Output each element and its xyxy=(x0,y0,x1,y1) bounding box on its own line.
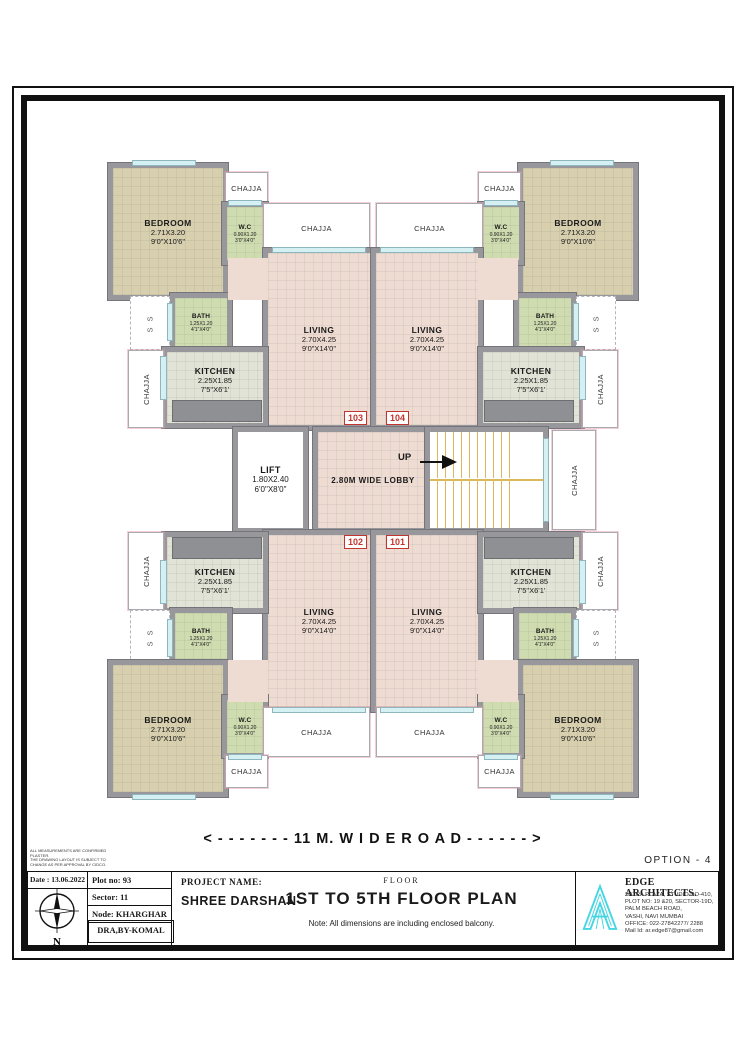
window xyxy=(573,619,579,657)
north-compass-icon: N xyxy=(35,889,79,947)
bedroom-101: BEDROOM 2.71X3.20 9'0"X10'6" xyxy=(518,660,638,797)
edge-architects-logo xyxy=(581,884,619,932)
flat-number-104: 104 xyxy=(386,411,409,425)
chajja-103-kitchen: CHAJJA xyxy=(128,350,164,428)
date-cell: Date : 13.06.2022 xyxy=(28,872,87,889)
stair-flight-lower xyxy=(430,481,510,528)
window xyxy=(272,247,366,253)
plot-info: Plot no: 93 Sector: 11 Node: KHARGHAR xyxy=(88,872,171,923)
window xyxy=(484,754,518,760)
window xyxy=(550,794,614,800)
service-shaft-102: S S xyxy=(130,610,170,664)
wc-102: W.C 0.90X1.20 3'0"X4'0" xyxy=(222,695,268,758)
window xyxy=(272,707,366,713)
window xyxy=(380,707,474,713)
option-label: OPTION - 4 xyxy=(600,855,712,866)
compass-n-label: N xyxy=(53,936,61,947)
lift: LIFT 1.80X2.40 6'0"X8'0" xyxy=(233,427,308,533)
bedroom-102: BEDROOM 2.71X3.20 9'0"X10'6" xyxy=(108,660,228,797)
wc-103: W.C 0.90X1.20 3'0"X4'0" xyxy=(222,202,268,265)
window xyxy=(573,303,579,341)
window xyxy=(160,356,167,400)
chajja-staircase: CHAJJA xyxy=(552,430,596,530)
kitchen-counter-103 xyxy=(172,400,262,422)
chajja-101-kitchen: CHAJJA xyxy=(582,532,618,610)
up-arrow-head xyxy=(442,455,457,469)
service-shaft-103: S S xyxy=(130,296,170,350)
lobby: 2.80M WIDE LOBBY xyxy=(313,427,433,533)
bedroom-104: BEDROOM 2.71X3.20 9'0"X10'6" xyxy=(518,163,638,300)
disclaimer-text: ALL MEASUREMENTS ARE CONFIRMED PLASTER. … xyxy=(30,849,120,867)
living-102: LIVING 2.70X4.25 9'0"X14'0" xyxy=(263,530,375,712)
window xyxy=(579,356,586,400)
wc-101: W.C 0.90X1.20 3'0"X4'0" xyxy=(478,695,524,758)
living-101: LIVING 2.70X4.25 9'0"X14'0" xyxy=(371,530,483,712)
service-shaft-101: S S xyxy=(576,610,616,664)
living-103: LIVING 2.70X4.25 9'0"X14'0" xyxy=(263,248,375,430)
chajja-102-living: CHAJJA xyxy=(263,707,370,757)
chajja-103-living: CHAJJA xyxy=(263,203,370,253)
service-shaft-104: S S xyxy=(576,296,616,350)
chajja-102-kitchen: CHAJJA xyxy=(128,532,164,610)
sheet-title: 1ST TO 5TH FLOOR PLAN xyxy=(228,889,575,909)
passage-104 xyxy=(478,258,518,300)
drawn-by: DRA,BY-KOMAL xyxy=(88,920,174,943)
title-block-divider xyxy=(575,872,576,945)
window xyxy=(228,200,262,206)
flat-number-101: 101 xyxy=(386,535,409,549)
window xyxy=(132,794,196,800)
bath-104: BATH 1.25X1.20 4'1"X4'0" xyxy=(514,293,576,352)
bath-103: BATH 1.25X1.20 4'1"X4'0" xyxy=(170,293,232,352)
sector: Sector: 11 xyxy=(88,889,171,906)
road-label: < - - - - - - - 11 M. W I D E R O A D - … xyxy=(0,831,745,847)
window xyxy=(579,560,586,604)
floor-header: FLOOR xyxy=(228,876,575,885)
kitchen-counter-102 xyxy=(172,537,262,559)
chajja-104-living: CHAJJA xyxy=(376,203,483,253)
plot-no: Plot no: 93 xyxy=(88,872,171,889)
stair-landing-line xyxy=(430,479,543,481)
passage-102 xyxy=(228,660,268,702)
living-104: LIVING 2.70X4.25 9'0"X14'0" xyxy=(371,248,483,430)
window xyxy=(380,247,474,253)
kitchen-counter-101 xyxy=(484,537,574,559)
window xyxy=(132,160,196,166)
kitchen-counter-104 xyxy=(484,400,574,422)
window xyxy=(167,303,173,341)
bath-101: BATH 1.25X1.20 4'1"X4'0" xyxy=(514,608,576,667)
bedroom-103-label: BEDROOM 2.71X3.20 9'0"X10'6" xyxy=(144,218,191,246)
window xyxy=(543,438,549,522)
wc-104: W.C 0.90X1.20 3'0"X4'0" xyxy=(478,202,524,265)
bath-102: BATH 1.25X1.20 4'1"X4'0" xyxy=(170,608,232,667)
window xyxy=(167,619,173,657)
stairs-up-label: UP xyxy=(398,452,411,463)
window xyxy=(228,754,262,760)
staircase xyxy=(425,427,548,533)
window xyxy=(484,200,518,206)
bedroom-103: BEDROOM 2.71X3.20 9'0"X10'6" xyxy=(108,163,228,300)
title-block: Date : 13.06.2022 N Plot no: 93 Sector: … xyxy=(27,871,719,946)
window xyxy=(160,560,167,604)
chajja-101-living: CHAJJA xyxy=(376,707,483,757)
flat-number-103: 103 xyxy=(344,411,367,425)
passage-103 xyxy=(228,258,268,300)
chajja-104-kitchen: CHAJJA xyxy=(582,350,618,428)
up-arrow-line xyxy=(420,461,442,463)
window xyxy=(550,160,614,166)
floor-plan-sheet: BEDROOM 2.71X3.20 9'0"X10'6" CHAJJA W.C … xyxy=(0,0,745,1055)
flat-number-102: 102 xyxy=(344,535,367,549)
dimension-note: Note: All dimensions are including enclo… xyxy=(228,919,575,928)
architect-address: SATRA PLAZA, STUDIO NO-410, PLOT NO: 19 … xyxy=(625,892,713,935)
passage-101 xyxy=(478,660,518,702)
